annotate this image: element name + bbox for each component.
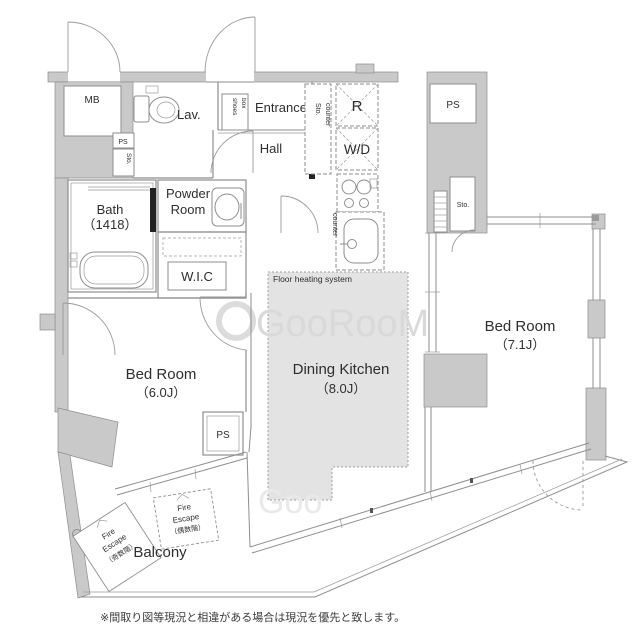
dining-kitchen-label: Dining Kitchen	[293, 361, 390, 378]
kitchen-corridor-door	[281, 196, 318, 233]
stove	[337, 174, 378, 212]
kitchen-counter-north-label-1: Sto.	[314, 103, 321, 116]
bedroom-second-size-label: （6.0J）	[136, 385, 187, 400]
hall-label: Hall	[260, 141, 283, 156]
pipe-space-bedroom2: PS	[203, 412, 243, 455]
lavatory-label: Lav.	[177, 107, 201, 122]
floor-heating-label: Floor heating system	[273, 274, 352, 284]
pipe-space-kitchen: PS	[430, 84, 476, 123]
bath-door-seal	[150, 188, 156, 232]
powder-room-label-2: Room	[171, 202, 206, 217]
watermark-ring	[219, 304, 253, 338]
walk-in-closet: W.I.C	[158, 232, 246, 298]
washbasin	[215, 194, 239, 220]
bedroom-storage-label: Sto.	[457, 202, 470, 209]
kitchen-counter-side-label: counter	[331, 213, 338, 237]
storage-left-label: Sto.	[125, 153, 132, 165]
shoes-box-label-1: shoes	[231, 98, 238, 116]
balcony-label: Balcony	[133, 544, 187, 561]
shoes-box: shoes box	[222, 94, 248, 130]
floorplan-drawing: GooRooM GooRooM MB PS Sto. Lav. sho	[0, 0, 640, 640]
dining-kitchen-size-label: （8.0J）	[316, 381, 367, 396]
hall-door	[211, 131, 253, 173]
refrigerator-label: R	[352, 98, 363, 115]
storage-left: Sto.	[113, 149, 134, 176]
balcony-door-arc	[533, 461, 583, 510]
entrance-door-arc	[205, 17, 255, 72]
shoes-box-label-2: box	[240, 98, 247, 109]
kitchen: Sto. counter R W/D counter	[305, 84, 384, 270]
bedroom-second-label: Bed Room	[126, 366, 197, 383]
washer-dryer-label: W/D	[344, 142, 370, 157]
watermark-text: GooRooM	[256, 303, 429, 345]
floorplan-canvas: GooRooM GooRooM MB PS Sto. Lav. sho	[0, 0, 640, 640]
bedroom-main-label: Bed Room	[485, 318, 556, 335]
meter-box-label: MB	[85, 95, 100, 106]
disclaimer-text: ※間取り図等現況と相違がある場合は現況を優先と致します。	[100, 610, 405, 624]
bath-size-label: （1418）	[83, 217, 138, 232]
pipe-space-kitchen-label: PS	[446, 100, 460, 111]
watermark-text-partial: GooRooM	[258, 483, 413, 521]
entrance-label: Entrance	[255, 100, 307, 115]
fire-escape-hatch-even: Fire Escape （偶数階）	[153, 489, 218, 549]
meter-box: MB	[64, 86, 121, 136]
bath-label: Bath	[97, 202, 124, 217]
toilet	[134, 86, 179, 123]
bath-room: Bath （1418）	[68, 180, 156, 292]
pipe-space-left-label: PS	[118, 139, 128, 146]
bedroom-second-west-door	[63, 303, 115, 355]
bedroom-main-size-label: （7.1J）	[495, 337, 546, 352]
powder-room-label-1: Powder	[166, 186, 211, 201]
pipe-space-bedroom2-label: PS	[216, 430, 230, 441]
pipe-space-left: PS	[113, 133, 134, 148]
powder-room: Powder Room	[158, 180, 246, 232]
bedroom-main-windows	[425, 213, 600, 492]
wic-label: W.I.C	[181, 269, 213, 284]
meter-box-door-arc	[68, 22, 120, 72]
kitchen-counter-north-label-2: counter	[324, 103, 331, 127]
